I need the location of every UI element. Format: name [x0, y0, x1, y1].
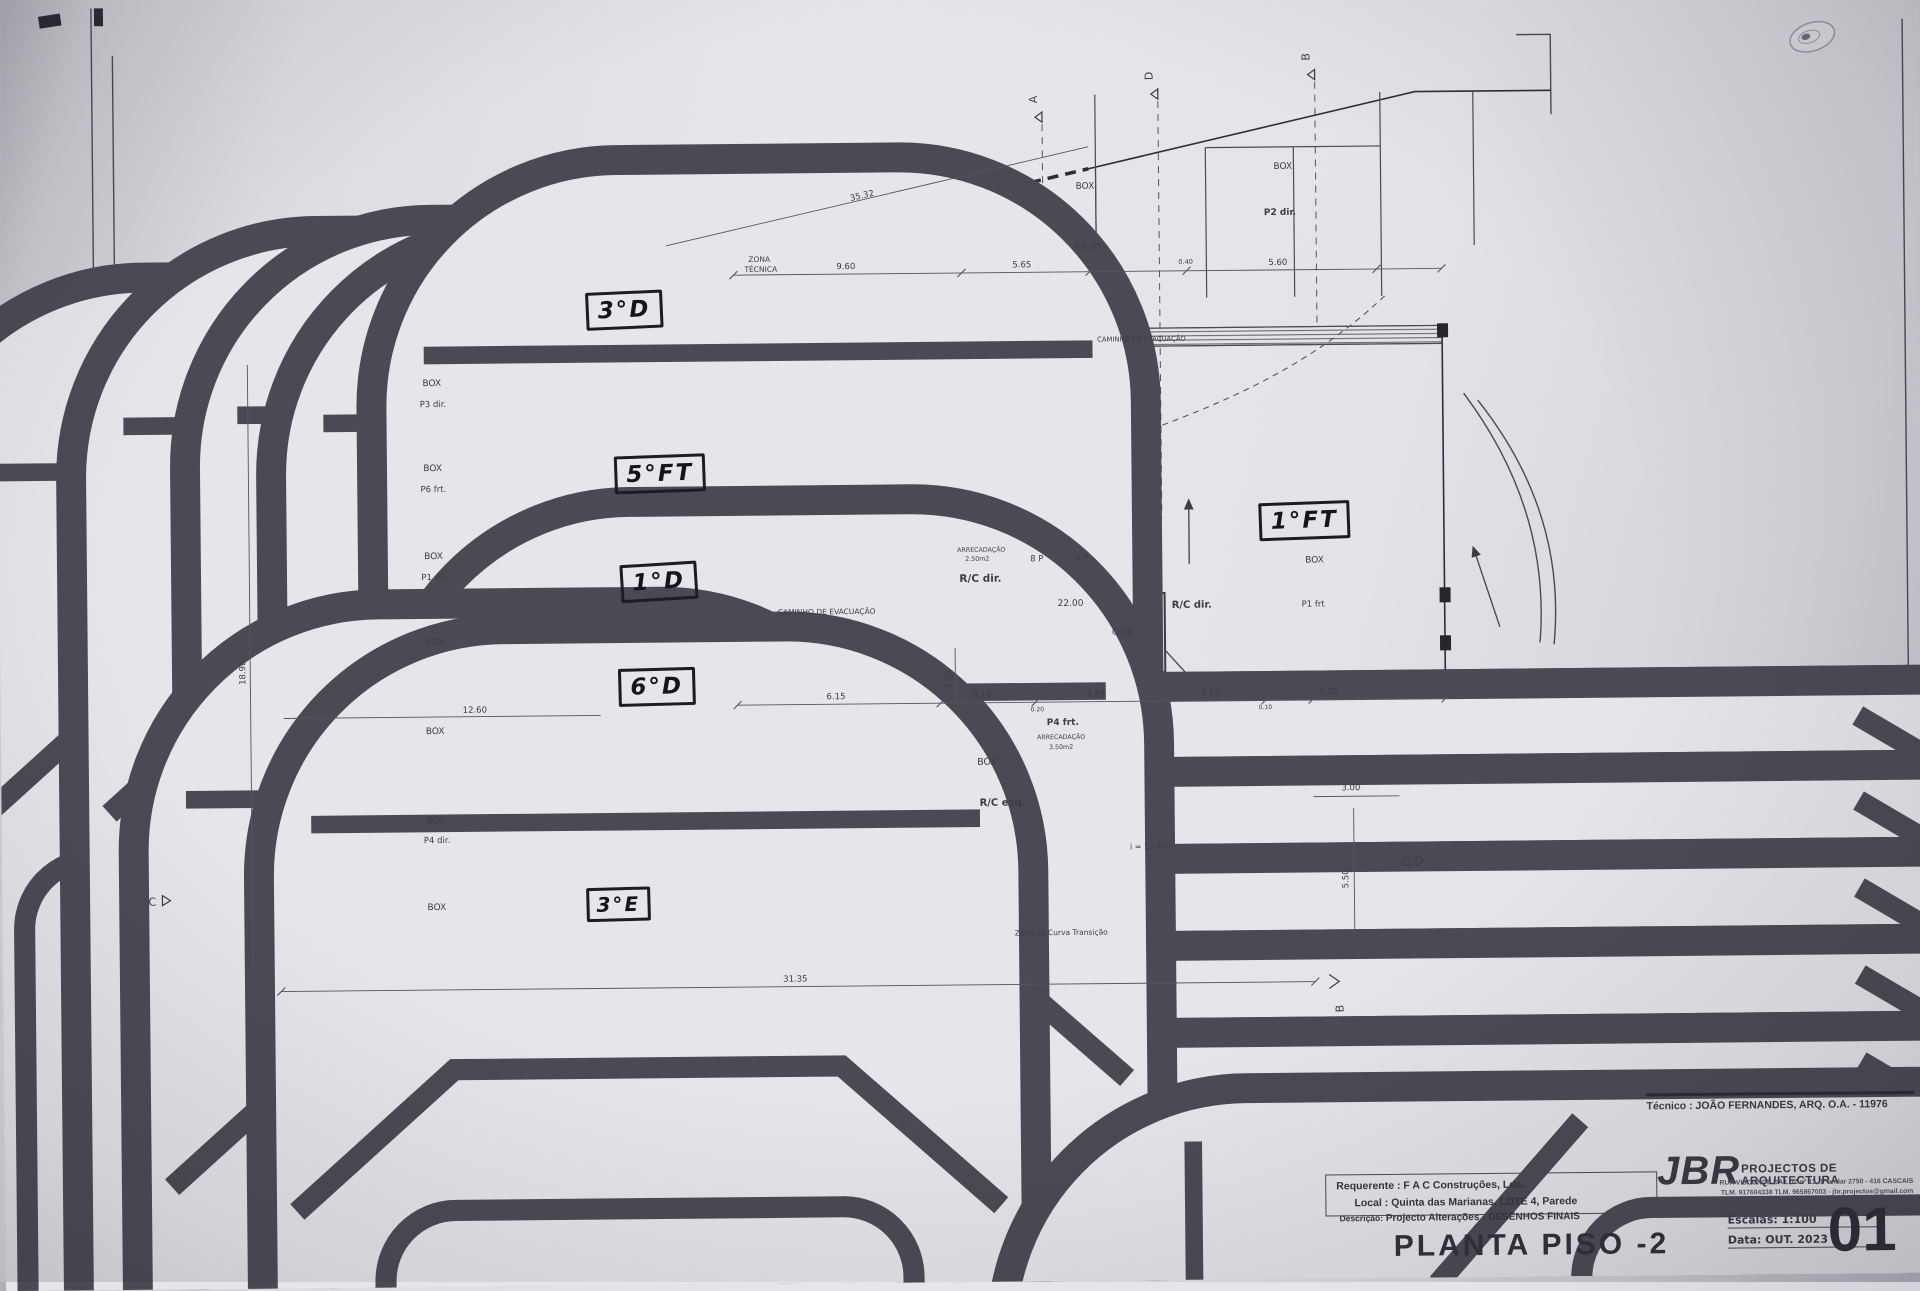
handwritten-annotation-1ft: 1°FT [1258, 500, 1350, 541]
titleblock-sheet-number: 01 [1827, 1199, 1897, 1262]
label-p1f: P1 frt [1302, 599, 1326, 609]
label-box: BOX [427, 816, 446, 826]
handwritten-annotation-3e: 3°E [586, 886, 650, 922]
label-rcdir-car: R/C dir. [1172, 600, 1212, 611]
marker-c-right: C [1402, 856, 1410, 869]
smudge-mark [1786, 16, 1839, 57]
titleblock-descricao-label: Descrição: [1340, 1213, 1384, 1223]
label-box: BOX [427, 903, 446, 913]
dim-615: 6.15 [826, 692, 845, 702]
label-p2d: P2 dir. [1264, 208, 1296, 218]
label-p3: P3 dir. [420, 400, 447, 410]
dim-310: 3.10 [1200, 689, 1219, 699]
photographed-drawing: { "annotations": { "a3d": "3°D", "a5ft":… [0, 0, 1920, 1282]
label-box: BOX [425, 638, 444, 648]
label-p4f: P4 frt. [1047, 718, 1079, 728]
dim-010: 0.10 [1259, 704, 1273, 711]
dim-040: 0.40 [1178, 258, 1193, 266]
marker-d: D [1143, 72, 1156, 81]
handwritten-annotation-6d: 6°D [618, 667, 696, 707]
label-elev8: 8 P [1030, 554, 1043, 564]
dim-315: 3.15 [972, 691, 991, 701]
handwritten-annotation-1d: 1°D [619, 561, 698, 604]
label-p1d: P1 dir. [421, 573, 448, 583]
label-p4d: P4 dir. [424, 836, 451, 846]
dim-bottom: 31.35 [783, 974, 807, 984]
dim-560: 5.60 [1268, 258, 1287, 268]
label-arrec: ARRECADAÇÃO [957, 545, 1005, 554]
label-curva: Zona de Curva Transição [1015, 928, 1108, 938]
dim-960: 9.60 [836, 262, 855, 272]
label-box: BOX [1076, 182, 1095, 192]
label-rcesq: R/C esq. [980, 797, 1026, 808]
handwritten-annotation-3d: 3°D [585, 290, 663, 331]
dim-565: 5.65 [1012, 260, 1031, 270]
label-slope: i = 17.6% [1130, 842, 1170, 851]
dim-020: 0.20 [1031, 706, 1045, 713]
cars [0, 135, 1920, 1291]
dim-150: 1.50 [943, 670, 952, 688]
label-p6: P6 frt. [420, 485, 446, 495]
label-area1: 2.50m2 [965, 556, 989, 563]
titleblock-local: Local : Quinta das Marianas, LOTE 4, Par… [1336, 1192, 1646, 1212]
marker-b2: B [1334, 1005, 1347, 1013]
dim-1898: 18.98 [238, 660, 248, 684]
titleblock-descricao-text: Projecto Alterações - DESENHOS FINAIS [1386, 1211, 1580, 1224]
dim-420: 4.20 [1318, 687, 1337, 697]
dim-365: 3.65 [1086, 690, 1105, 700]
label-box: BOX [424, 552, 443, 562]
label-box: BOX [423, 464, 442, 474]
label-box: BOX [426, 727, 445, 737]
label-nivel: 22.00 [1058, 599, 1084, 609]
dim-300: 3.00 [1341, 783, 1360, 793]
titleblock-requerente-box: Requerente : F A C Construções, Lda. Loc… [1325, 1171, 1657, 1216]
handwritten-annotation-5ft: 5°FT [614, 453, 706, 494]
car-icon [257, 624, 1051, 1291]
label-zona-1: ZONA [748, 255, 771, 264]
label-box: BOX [422, 379, 441, 389]
label-cf60: CF60 [1112, 627, 1132, 636]
label-box: BOX [977, 757, 997, 768]
label-area2: 3.50m2 [1049, 744, 1073, 751]
marker-c-left: C [148, 896, 156, 909]
titleblock-tecnico: Técnico : JOÃO FERNANDES, ARQ. O.A. - 11… [1646, 1091, 1914, 1112]
label-arrec2: ARRECADAÇÃO [1037, 732, 1085, 741]
label-box: BOX [1273, 162, 1292, 172]
label-elev6: 6 P [1075, 554, 1088, 564]
label-box: BOX [1305, 556, 1324, 566]
dim-1260: 12.60 [463, 706, 487, 716]
label-zona-2: TÉCNICA [743, 265, 778, 274]
marker-a: A [1027, 95, 1040, 103]
label-caminho-2: CAMINHO DE EVACUAÇÃO [1097, 334, 1186, 344]
titleblock-title: PLANTA PISO -2 [1394, 1229, 1670, 1262]
label-rcfrt: R/C frt [1074, 242, 1102, 252]
label-rcdir-room: R/C dir. [959, 573, 1001, 585]
floor-plan: ZONA TÉCNICA CAMINHO DE EVACUAÇÃO CAMINH… [0, 0, 1920, 1291]
registration-marks [38, 8, 103, 29]
dim-550: 5.50 [1341, 869, 1351, 888]
marker-b: B [1299, 53, 1312, 61]
label-caminho-1: CAMINHO DE EVACUAÇÃO [778, 607, 876, 617]
drawing-sheet: ZONA TÉCNICA CAMINHO DE EVACUAÇÃO CAMINH… [0, 0, 1920, 1291]
